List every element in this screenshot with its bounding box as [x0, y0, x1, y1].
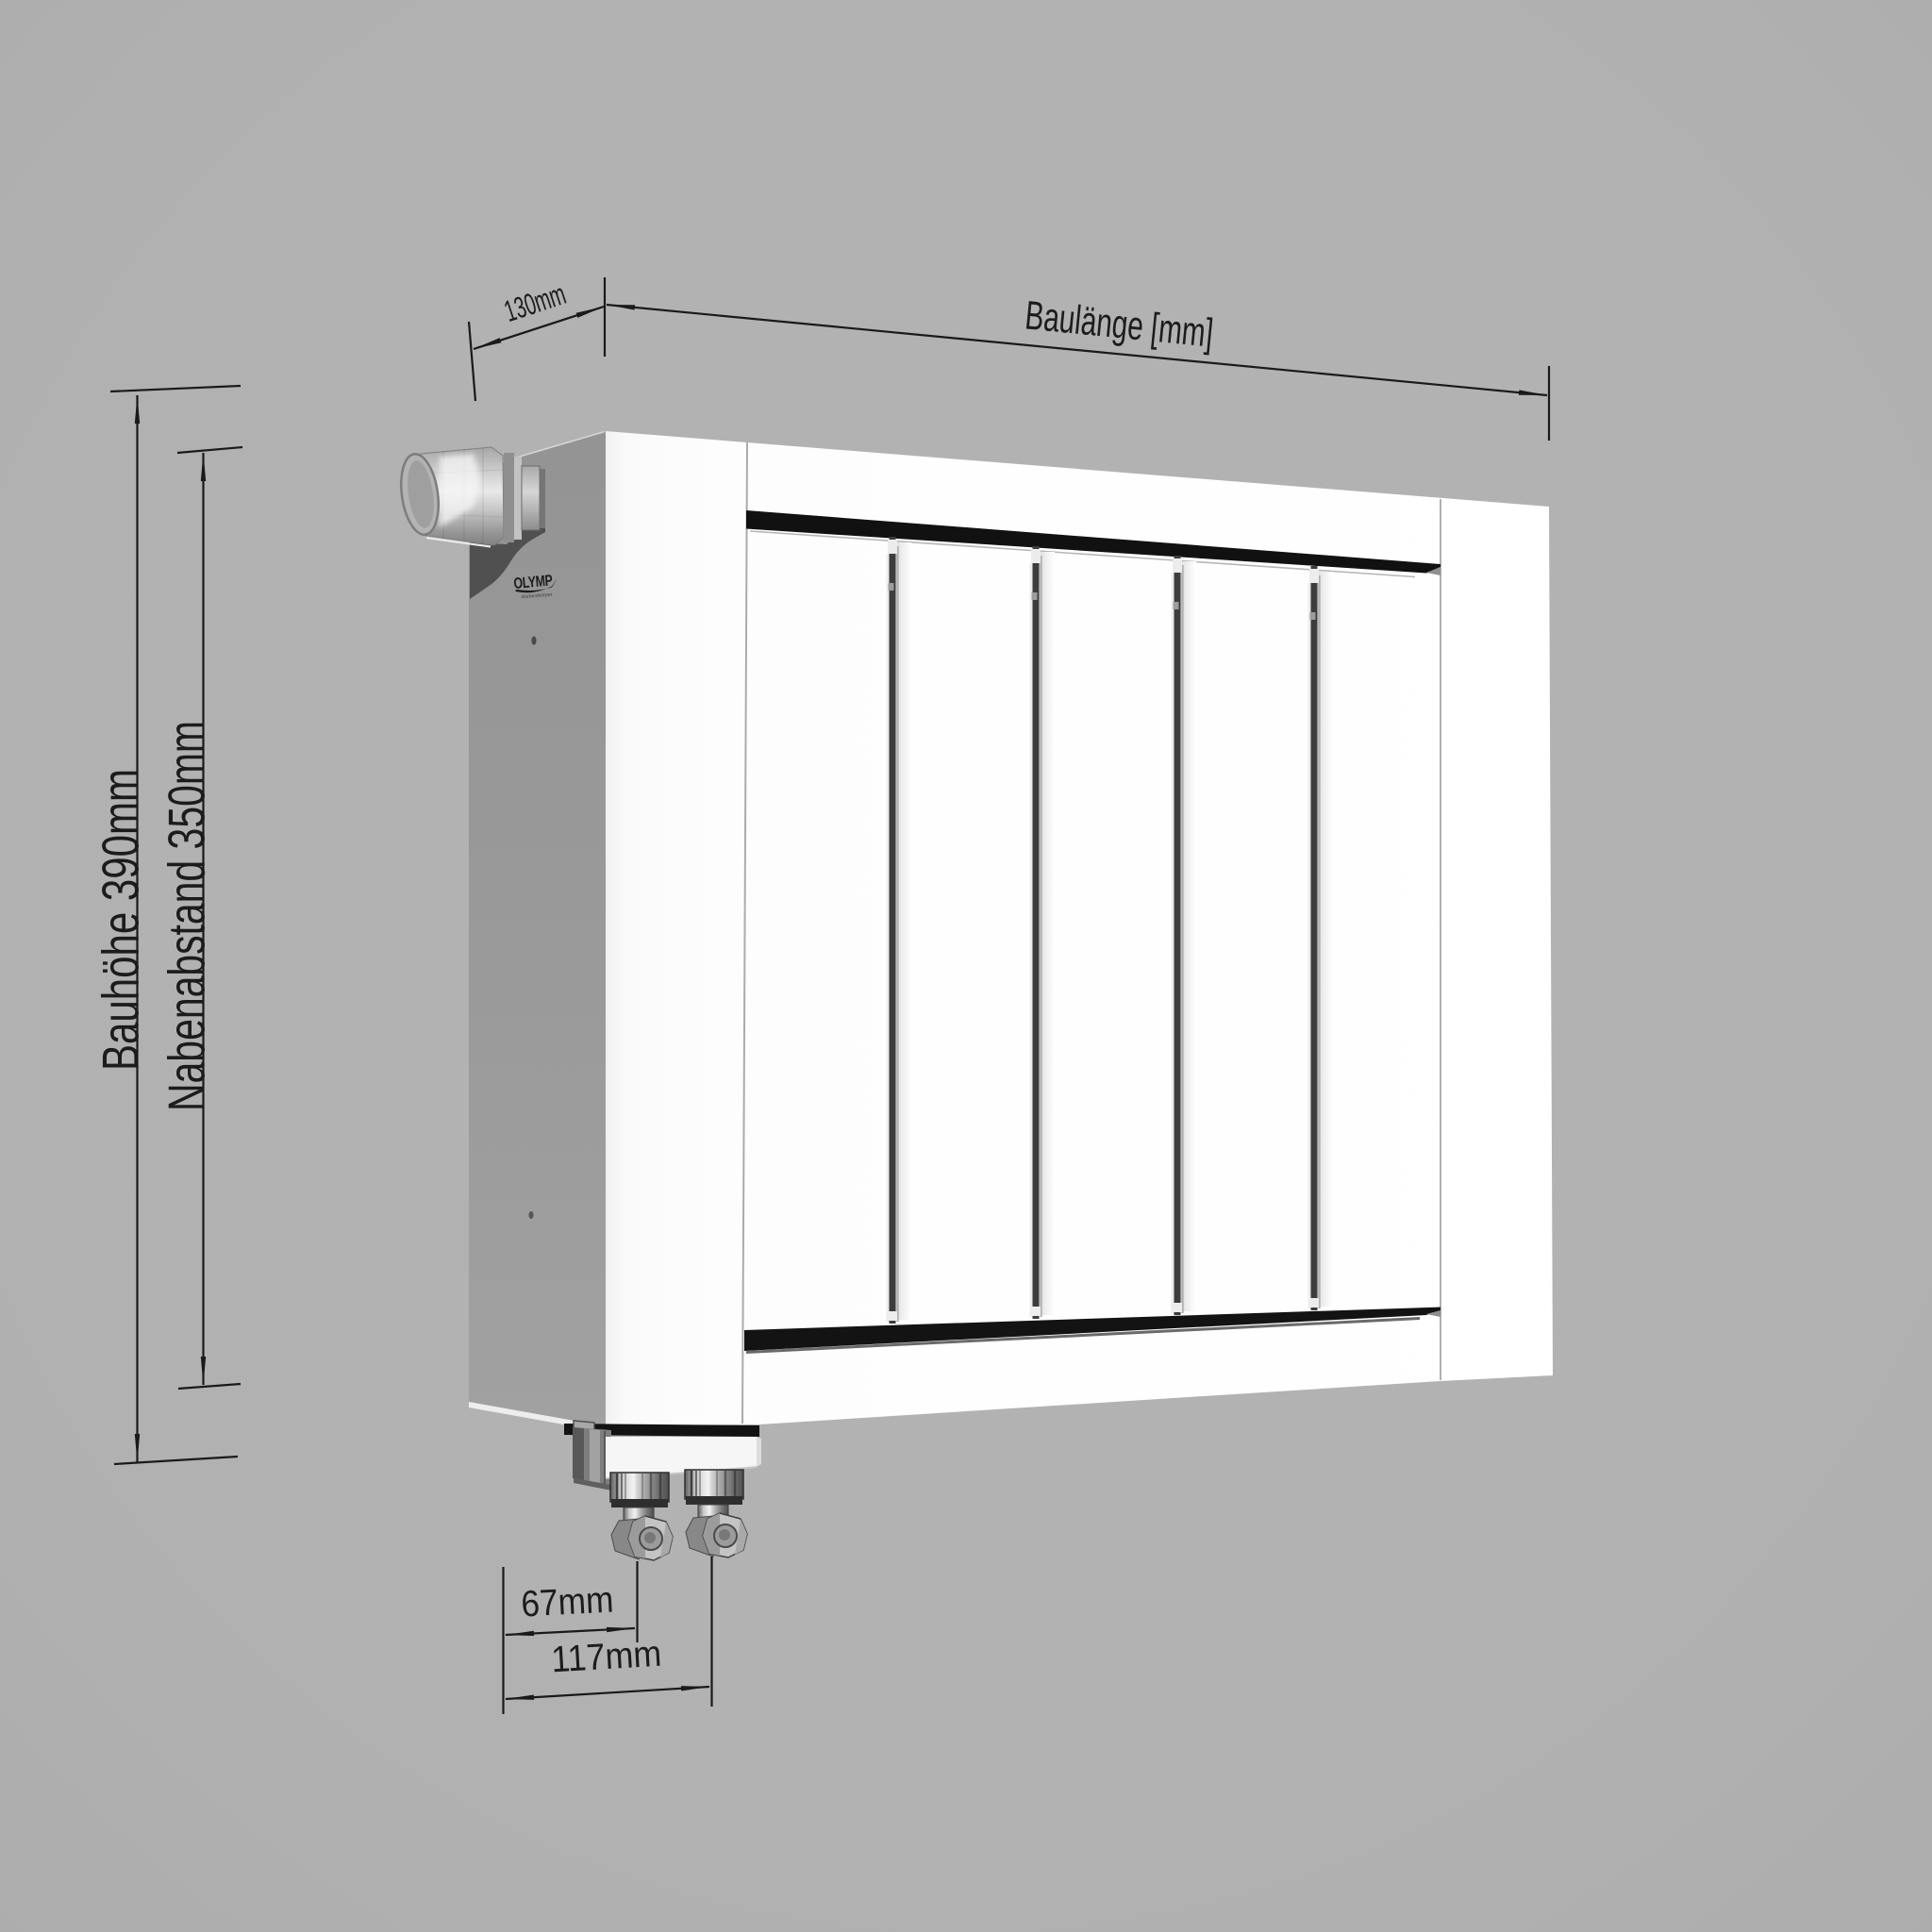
svg-text:Bauhöhe 390mm: Bauhöhe 390mm: [92, 769, 149, 1071]
svg-text:117mm: 117mm: [550, 1632, 662, 1679]
svg-text:67mm: 67mm: [520, 1578, 614, 1624]
svg-text:OLYMP: OLYMP: [513, 572, 554, 592]
svg-text:Nabenabstand 350mm: Nabenabstand 350mm: [158, 721, 215, 1111]
